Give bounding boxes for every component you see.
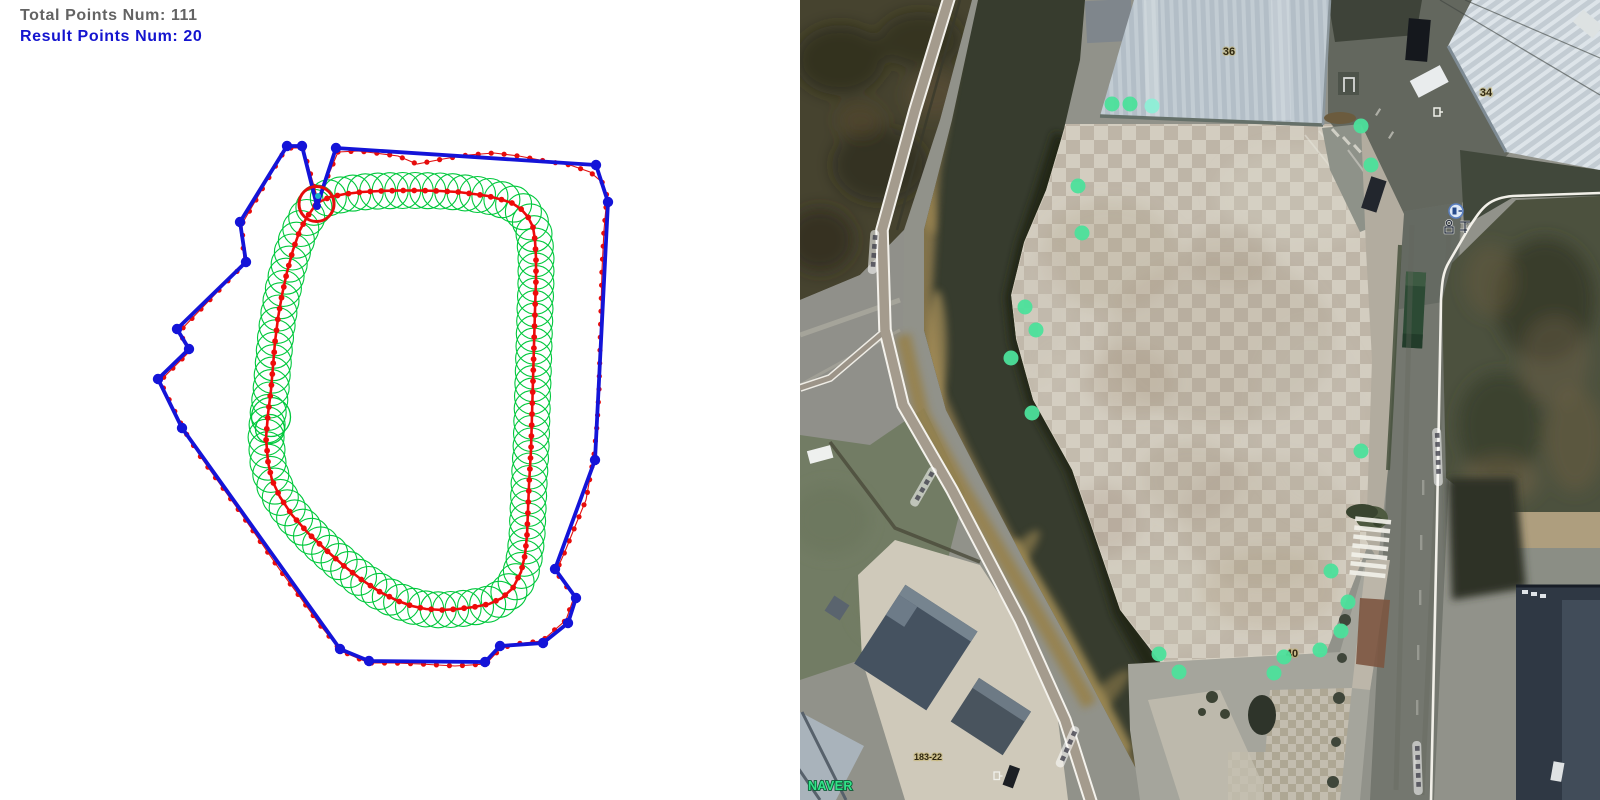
svg-text:36: 36 (1223, 46, 1235, 58)
svg-text:183-22: 183-22 (914, 752, 942, 762)
svg-text:NAVER: NAVER (808, 779, 853, 793)
svg-text:34: 34 (1480, 87, 1493, 99)
